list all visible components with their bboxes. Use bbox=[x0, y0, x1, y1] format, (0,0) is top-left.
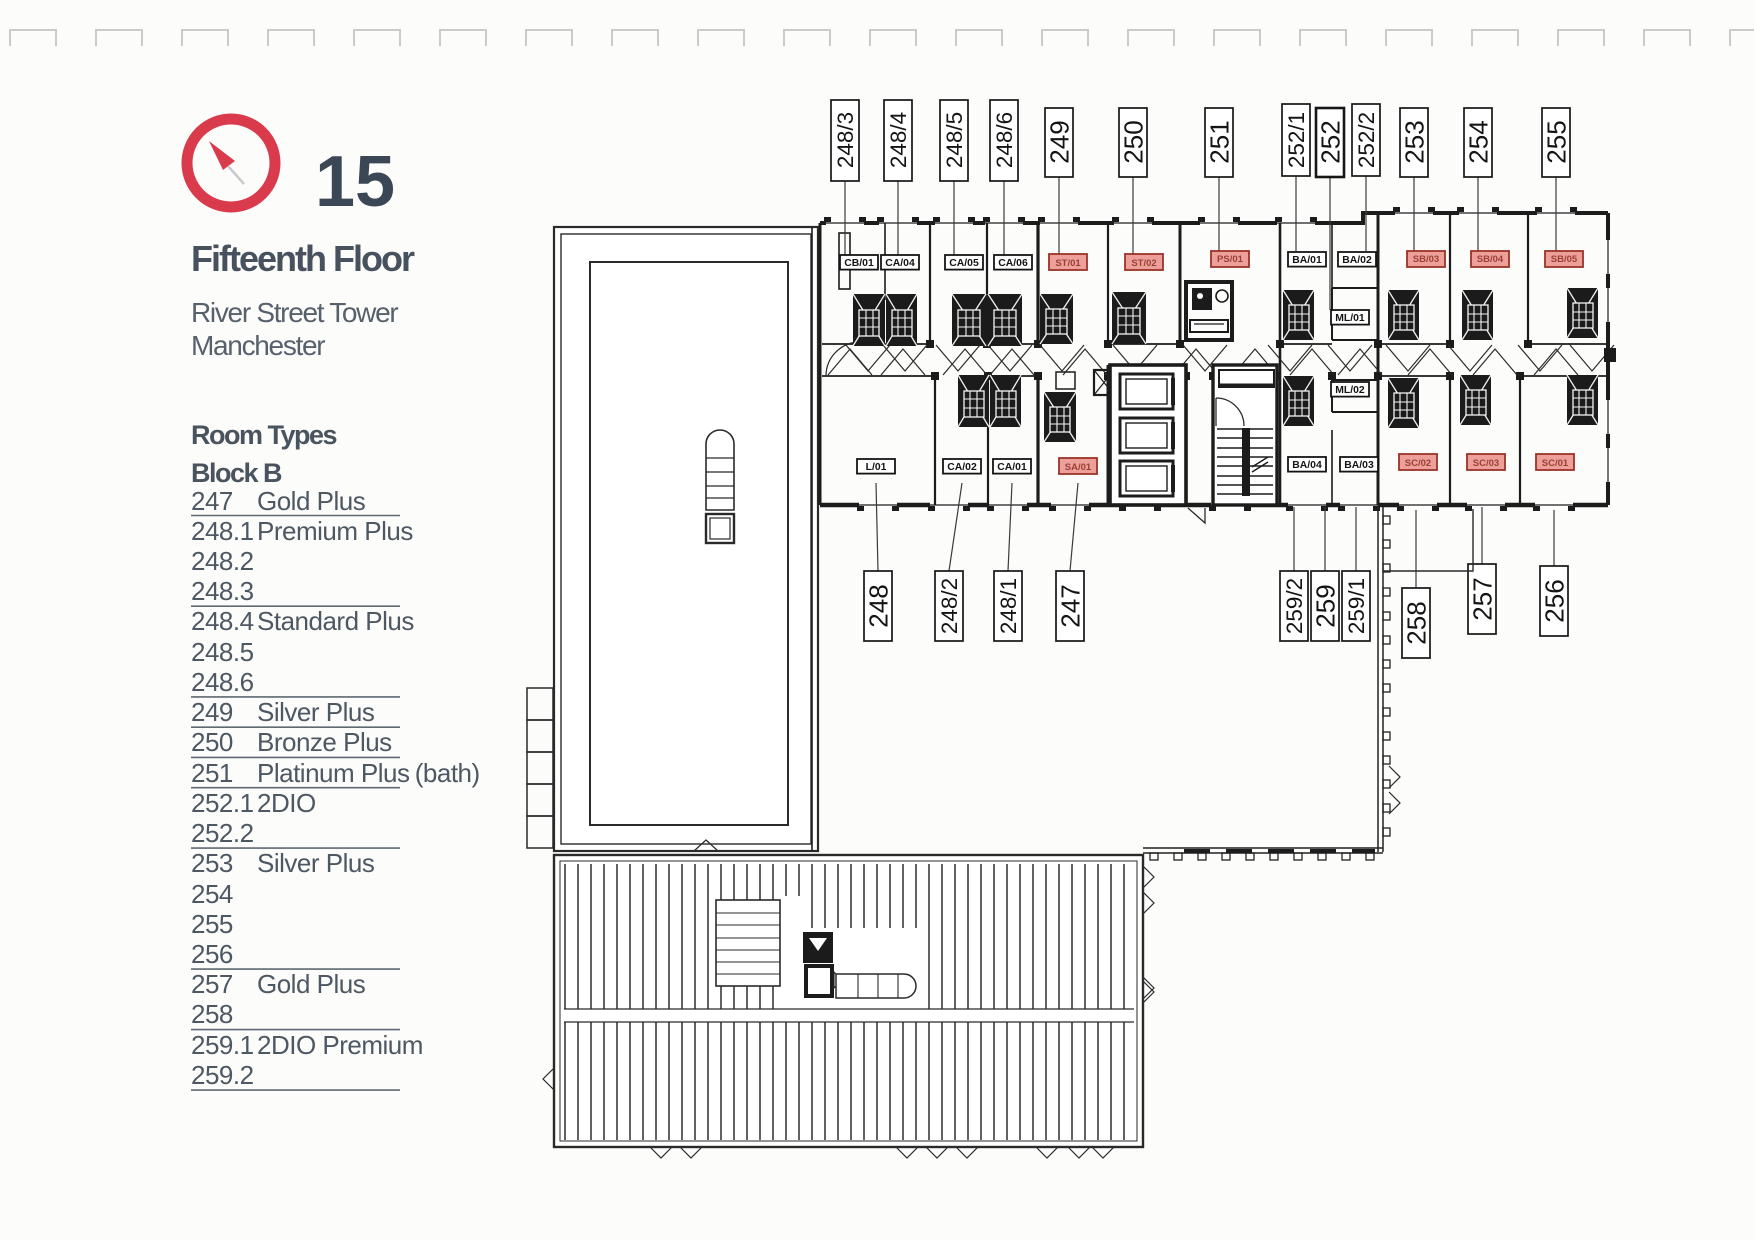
svg-text:BA/01: BA/01 bbox=[1292, 255, 1322, 266]
svg-text:248/4: 248/4 bbox=[886, 112, 911, 168]
svg-text:ML/01: ML/01 bbox=[1335, 313, 1365, 324]
svg-text:248: 248 bbox=[863, 584, 893, 627]
svg-text:248/1: 248/1 bbox=[996, 578, 1021, 634]
svg-text:SC/02: SC/02 bbox=[1405, 458, 1431, 469]
svg-text:248/5: 248/5 bbox=[942, 112, 967, 168]
svg-text:250: 250 bbox=[1118, 120, 1148, 163]
svg-text:CA/06: CA/06 bbox=[998, 258, 1028, 269]
svg-text:SB/03: SB/03 bbox=[1413, 254, 1439, 265]
svg-text:259: 259 bbox=[1310, 584, 1340, 627]
svg-text:ST/02: ST/02 bbox=[1131, 258, 1156, 269]
svg-text:252: 252 bbox=[1315, 120, 1345, 163]
svg-text:259/2: 259/2 bbox=[1282, 578, 1307, 634]
svg-text:256: 256 bbox=[1539, 579, 1569, 622]
svg-text:252/2: 252/2 bbox=[1354, 112, 1379, 168]
svg-text:247: 247 bbox=[1055, 584, 1085, 627]
svg-text:SA/01: SA/01 bbox=[1065, 462, 1092, 473]
svg-text:CB/01: CB/01 bbox=[844, 258, 874, 269]
svg-text:257: 257 bbox=[1467, 577, 1497, 620]
svg-text:255: 255 bbox=[1541, 120, 1571, 163]
svg-text:253: 253 bbox=[1399, 120, 1429, 163]
svg-text:BA/04: BA/04 bbox=[1292, 460, 1322, 471]
svg-text:249: 249 bbox=[1044, 120, 1074, 163]
svg-text:CA/02: CA/02 bbox=[947, 462, 977, 473]
svg-text:BA/02: BA/02 bbox=[1342, 255, 1372, 266]
svg-text:ST/01: ST/01 bbox=[1055, 258, 1081, 269]
svg-text:252/1: 252/1 bbox=[1284, 112, 1309, 168]
svg-text:258: 258 bbox=[1401, 601, 1431, 644]
svg-text:248/6: 248/6 bbox=[992, 112, 1017, 168]
svg-text:CA/04: CA/04 bbox=[885, 258, 915, 269]
svg-text:SB/05: SB/05 bbox=[1551, 254, 1578, 265]
svg-text:254: 254 bbox=[1463, 120, 1493, 163]
svg-text:251: 251 bbox=[1204, 120, 1234, 163]
svg-text:ML/02: ML/02 bbox=[1335, 385, 1365, 396]
svg-text:CA/05: CA/05 bbox=[949, 258, 979, 269]
svg-text:248/2: 248/2 bbox=[937, 578, 962, 634]
svg-text:248/3: 248/3 bbox=[833, 112, 858, 168]
svg-text:SC/01: SC/01 bbox=[1542, 458, 1569, 469]
svg-text:259/1: 259/1 bbox=[1344, 578, 1369, 634]
svg-text:SB/04: SB/04 bbox=[1477, 254, 1504, 265]
svg-text:SC/03: SC/03 bbox=[1473, 458, 1499, 469]
svg-text:BA/03: BA/03 bbox=[1344, 460, 1374, 471]
svg-text:PS/01: PS/01 bbox=[1217, 254, 1244, 265]
svg-text:CA/01: CA/01 bbox=[997, 462, 1027, 473]
svg-text:L/01: L/01 bbox=[866, 462, 887, 473]
